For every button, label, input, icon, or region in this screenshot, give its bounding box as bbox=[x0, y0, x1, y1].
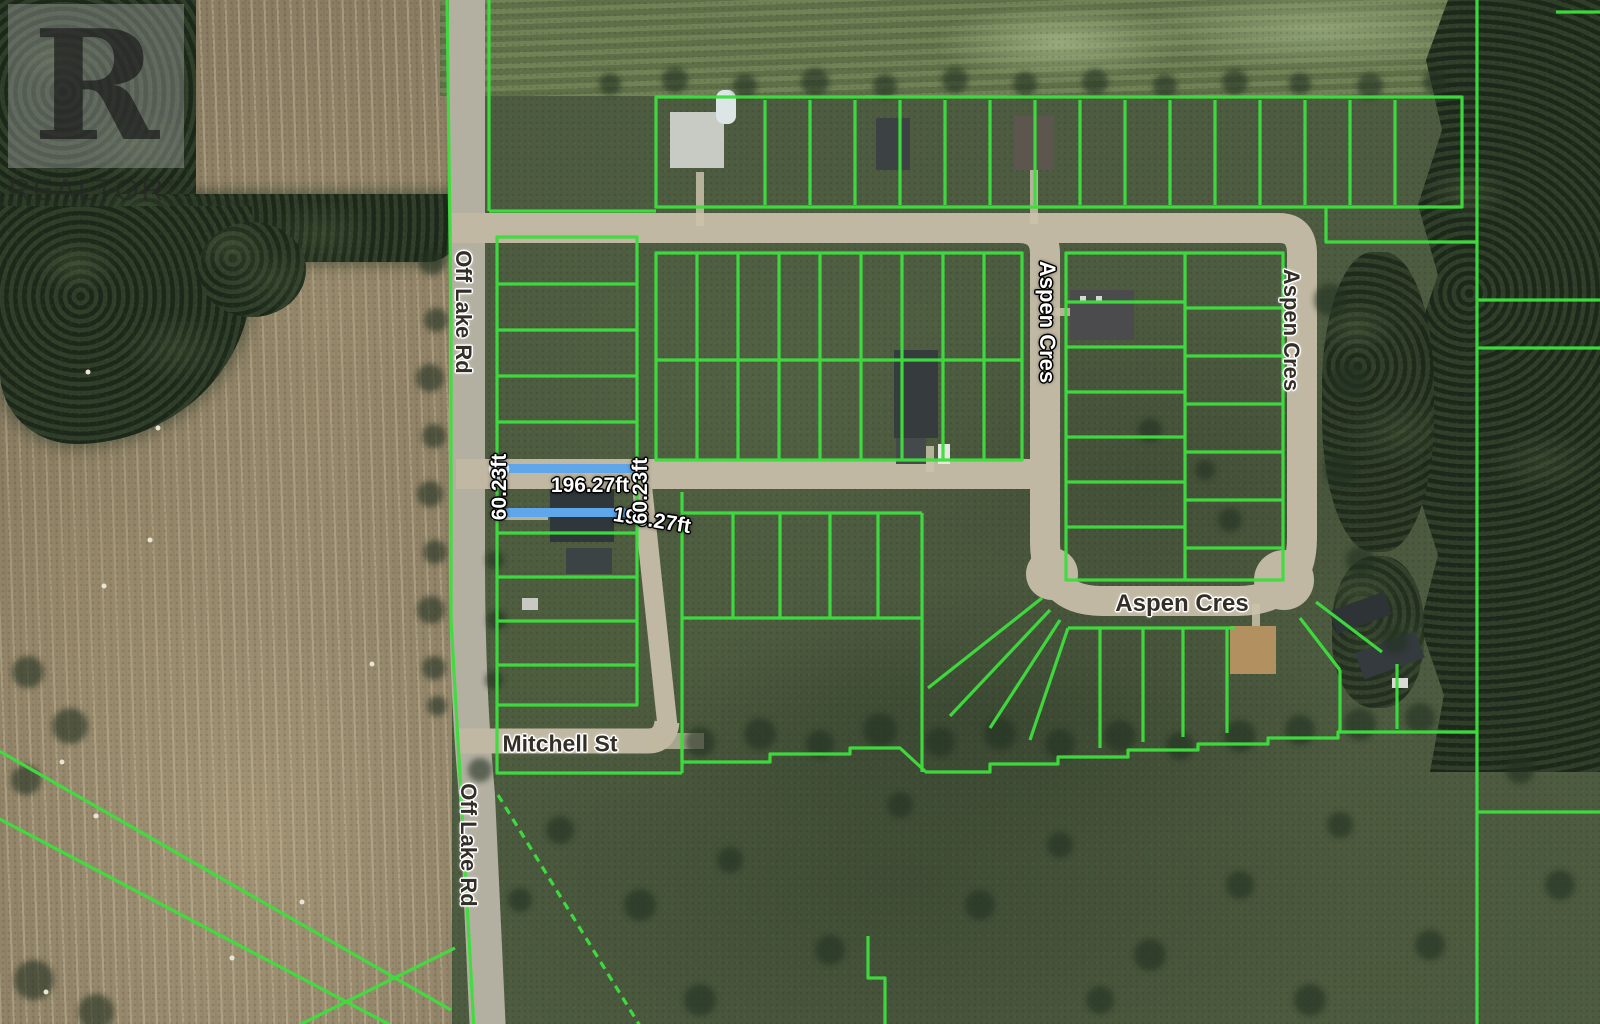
measurement-frontage-top: 196.27ft bbox=[551, 474, 629, 498]
street-label-off-lake-rd-north: Off Lake Rd bbox=[450, 250, 476, 373]
measurement-depth-right: 60.23ft bbox=[629, 458, 653, 525]
realtor-wordmark: REALTOR® bbox=[8, 172, 184, 208]
street-label-mitchell-st: Mitchell St bbox=[502, 731, 617, 758]
parcel-boundary-lines bbox=[0, 0, 1600, 1024]
realtor-watermark: R REALTOR® bbox=[8, 4, 184, 208]
tree-clumps bbox=[11, 67, 1575, 1024]
map-overlay bbox=[0, 0, 1600, 1024]
realtor-logo-box: R bbox=[8, 4, 184, 168]
street-label-aspen-cres-south: Aspen Cres bbox=[1115, 590, 1248, 618]
realtor-brand-text: REALTOR bbox=[8, 172, 166, 207]
street-label-aspen-cres-east: Aspen Cres bbox=[1278, 269, 1304, 391]
measurement-depth-left: 60.23ft bbox=[488, 454, 512, 521]
street-label-off-lake-rd-south: Off Lake Rd bbox=[455, 783, 481, 906]
street-label-aspen-cres-west: Aspen Cres bbox=[1034, 261, 1060, 383]
registered-mark: ® bbox=[166, 176, 178, 192]
realtor-logo-r: R bbox=[33, 18, 159, 155]
satellite-map-photo[interactable]: Off Lake Rd Off Lake Rd Mitchell St Aspe… bbox=[0, 0, 1600, 1024]
hay-bales bbox=[44, 370, 375, 995]
